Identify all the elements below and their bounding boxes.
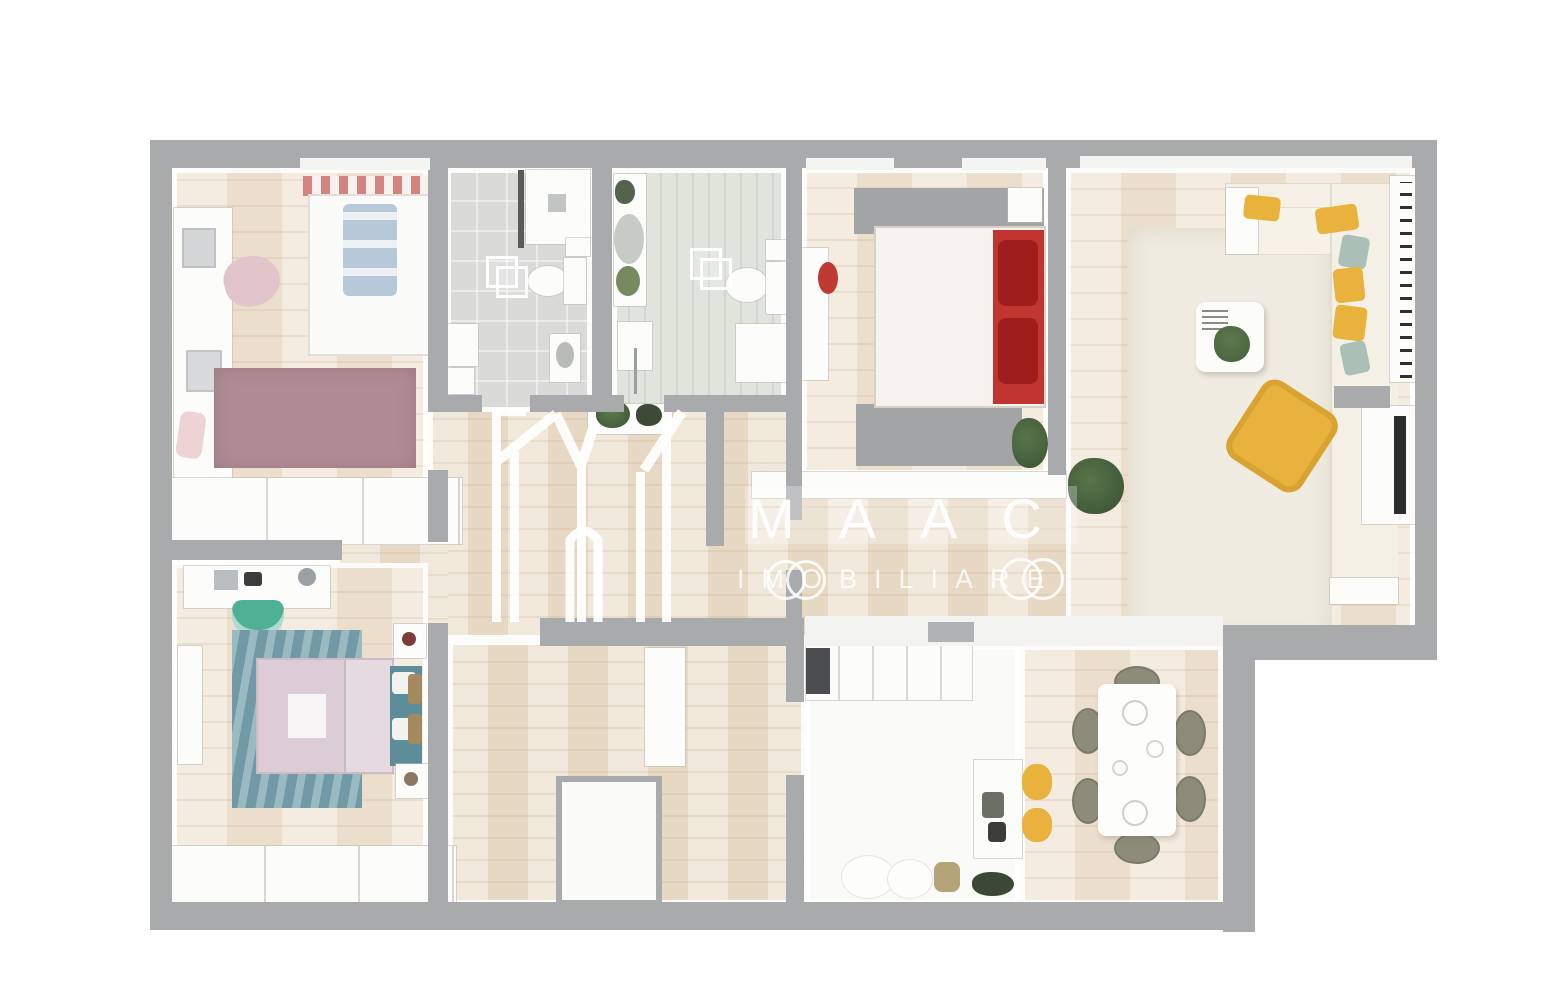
red-pillow bbox=[998, 240, 1038, 306]
nightstand-decor bbox=[402, 632, 416, 646]
yellow-stool bbox=[1022, 808, 1052, 842]
wall-kitchen-left-upper bbox=[786, 618, 804, 702]
washing-machine bbox=[444, 324, 478, 366]
yellow-pillow bbox=[1243, 194, 1281, 222]
window-bedroom1 bbox=[300, 158, 430, 170]
plant-icon bbox=[972, 872, 1014, 896]
place-setting bbox=[1122, 800, 1148, 826]
window-master-a bbox=[806, 158, 894, 170]
green-basin bbox=[616, 266, 640, 296]
nightstand-decor bbox=[404, 772, 418, 786]
wall-bathroom-divider bbox=[592, 168, 612, 412]
wall-bedroom2-right bbox=[428, 623, 448, 905]
sink-bowl bbox=[556, 342, 574, 368]
place-setting bbox=[1112, 760, 1128, 776]
photo-frame-icon bbox=[486, 256, 528, 298]
bath-cabinet bbox=[566, 238, 590, 256]
tv-unit bbox=[1362, 406, 1416, 524]
wardrobe bbox=[172, 478, 462, 544]
wall-bedroom1-right-lower bbox=[428, 470, 448, 542]
wall-kitchen-right bbox=[1223, 625, 1255, 932]
yellow-pillow bbox=[1332, 267, 1365, 304]
apartment-floor-plan: MAAC IMOBILIARE bbox=[0, 0, 1543, 1000]
wall-bathroom1-bottom-a bbox=[446, 395, 482, 412]
bed-throw bbox=[288, 694, 326, 738]
plant-icon bbox=[1012, 418, 1048, 468]
wall-kitchen-top bbox=[805, 616, 1223, 646]
red-desk-chair bbox=[818, 262, 838, 294]
oven bbox=[806, 648, 830, 694]
window-master-b bbox=[962, 158, 1046, 170]
grey-rug-bottom bbox=[856, 404, 1022, 466]
photo-frame-front bbox=[486, 256, 518, 288]
red-pillow bbox=[998, 318, 1038, 384]
toilet-tank bbox=[766, 262, 788, 314]
small-stool bbox=[934, 862, 960, 892]
photo-frame-icon bbox=[690, 248, 732, 290]
double-ring-ornament-icon bbox=[1022, 558, 1064, 600]
storage-closet bbox=[556, 776, 662, 906]
wall-right bbox=[1415, 140, 1437, 660]
mauve-rug bbox=[214, 368, 416, 468]
plant-icon bbox=[1214, 326, 1250, 362]
nightstand bbox=[1008, 188, 1042, 222]
place-setting bbox=[1146, 740, 1164, 758]
watermark-brand-text: MAAC bbox=[748, 486, 1086, 551]
yellow-pillow bbox=[1332, 304, 1368, 342]
wall-master-left-upper bbox=[786, 168, 802, 520]
wall-living-niche bbox=[1334, 386, 1390, 408]
laundry-basket bbox=[444, 368, 474, 394]
faucet-line bbox=[634, 348, 637, 394]
toilet bbox=[726, 268, 768, 302]
wall-bedroom1-right bbox=[428, 168, 448, 412]
shower-partition bbox=[518, 170, 524, 248]
toilet bbox=[528, 266, 568, 296]
island-appliance bbox=[988, 822, 1006, 842]
dining-chair bbox=[1176, 778, 1204, 820]
vanity-mirror bbox=[614, 214, 644, 264]
wall-left bbox=[150, 140, 172, 930]
wardrobe-side bbox=[178, 646, 202, 764]
photo-frame-front bbox=[690, 248, 722, 280]
shelf bbox=[766, 240, 788, 260]
shower-tray bbox=[736, 324, 786, 382]
yellow-stool bbox=[1022, 764, 1052, 800]
floor-mat bbox=[842, 856, 894, 898]
sofa-end-table bbox=[1330, 578, 1398, 604]
wall-bottom bbox=[150, 902, 1255, 930]
shower-drain bbox=[548, 194, 566, 212]
dining-chair bbox=[1116, 834, 1158, 862]
dining-chair bbox=[1176, 712, 1204, 754]
wall-hall-divider bbox=[706, 408, 724, 546]
tan-pillow bbox=[408, 674, 422, 704]
window-living bbox=[1080, 156, 1412, 168]
desk-chair bbox=[182, 228, 216, 268]
desk-items bbox=[244, 572, 262, 586]
maac-monogram-icon bbox=[478, 400, 690, 630]
wall-master-right bbox=[1048, 168, 1066, 475]
tan-pillow bbox=[408, 714, 422, 744]
floor-mat bbox=[888, 860, 932, 898]
duvet-fold bbox=[344, 660, 392, 772]
kitchen-counter bbox=[806, 646, 972, 700]
blue-blanket bbox=[343, 204, 397, 296]
tv-screen bbox=[1394, 416, 1406, 514]
laptop bbox=[214, 570, 238, 590]
double-ring-ornament-icon bbox=[786, 560, 826, 600]
plant-icon bbox=[615, 180, 635, 204]
books bbox=[1400, 182, 1412, 378]
wall-kitchen-left-lower bbox=[786, 775, 804, 905]
wall-living-bottom bbox=[1237, 625, 1437, 660]
coffee-machine bbox=[982, 792, 1004, 818]
toilet-tank bbox=[564, 258, 586, 304]
bed-canopy bbox=[303, 176, 431, 196]
wall-bedroom1-bottom bbox=[150, 540, 342, 560]
desk-lamp bbox=[298, 568, 316, 586]
wardrobe bbox=[172, 846, 456, 904]
teal-pillow bbox=[1337, 234, 1370, 270]
hall-cabinet bbox=[645, 648, 685, 766]
place-setting bbox=[1122, 700, 1148, 726]
kitchen-hood bbox=[928, 622, 974, 642]
